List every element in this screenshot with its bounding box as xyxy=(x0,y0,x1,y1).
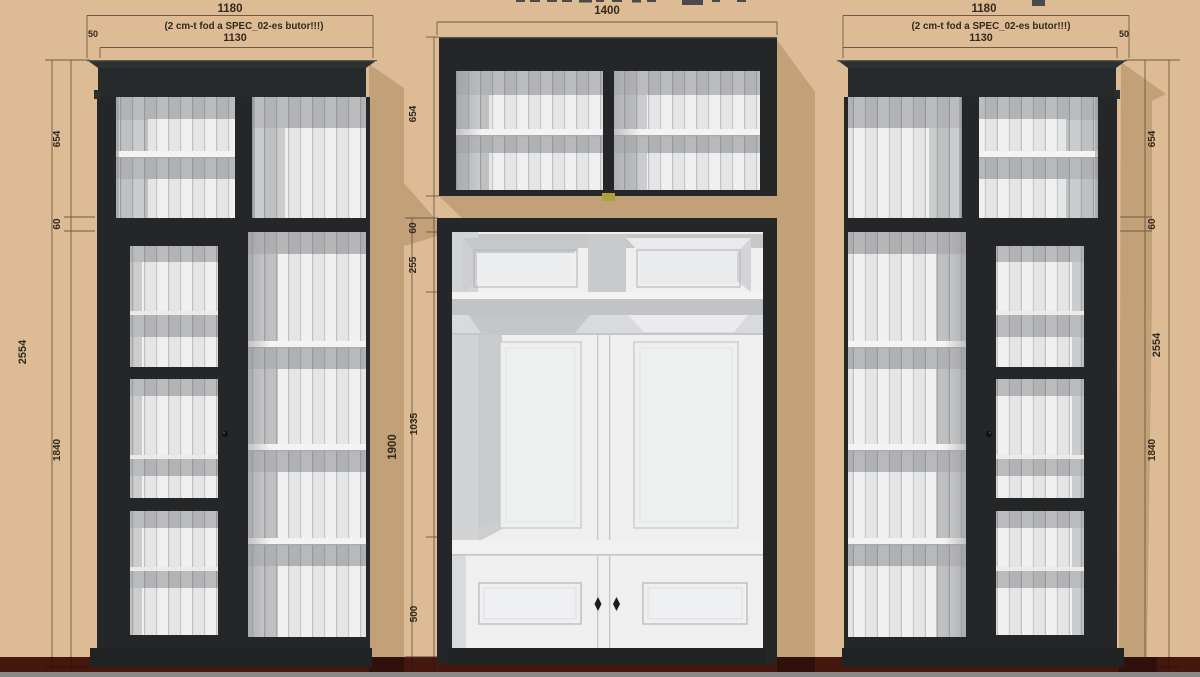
svg-text:1130: 1130 xyxy=(969,32,992,44)
svg-text:60: 60 xyxy=(52,218,63,230)
svg-text:60: 60 xyxy=(408,222,419,234)
svg-text:255: 255 xyxy=(408,256,419,273)
svg-text:60: 60 xyxy=(1147,218,1158,230)
svg-text:2554: 2554 xyxy=(1151,332,1163,357)
svg-text:50: 50 xyxy=(88,29,98,39)
svg-text:1035: 1035 xyxy=(409,412,420,435)
svg-text:(2 cm-t fod a SPEC_02-es butor: (2 cm-t fod a SPEC_02-es butor!!!) xyxy=(165,21,324,32)
svg-text:50: 50 xyxy=(1119,29,1129,39)
svg-text:1840: 1840 xyxy=(52,438,63,461)
svg-text:1180: 1180 xyxy=(972,3,997,15)
svg-text:1400: 1400 xyxy=(594,5,620,17)
svg-text:2554: 2554 xyxy=(17,339,29,364)
svg-text:1900: 1900 xyxy=(387,434,399,460)
svg-text:654: 654 xyxy=(408,105,419,122)
svg-text:654: 654 xyxy=(52,130,63,147)
svg-text:(2 cm-t fod a SPEC_02-es butor: (2 cm-t fod a SPEC_02-es butor!!!) xyxy=(912,21,1071,32)
svg-text:654: 654 xyxy=(1147,130,1158,147)
svg-text:1180: 1180 xyxy=(218,3,243,15)
svg-text:1840: 1840 xyxy=(1147,438,1158,461)
svg-text:500: 500 xyxy=(409,605,420,622)
svg-text:1130: 1130 xyxy=(223,32,246,44)
